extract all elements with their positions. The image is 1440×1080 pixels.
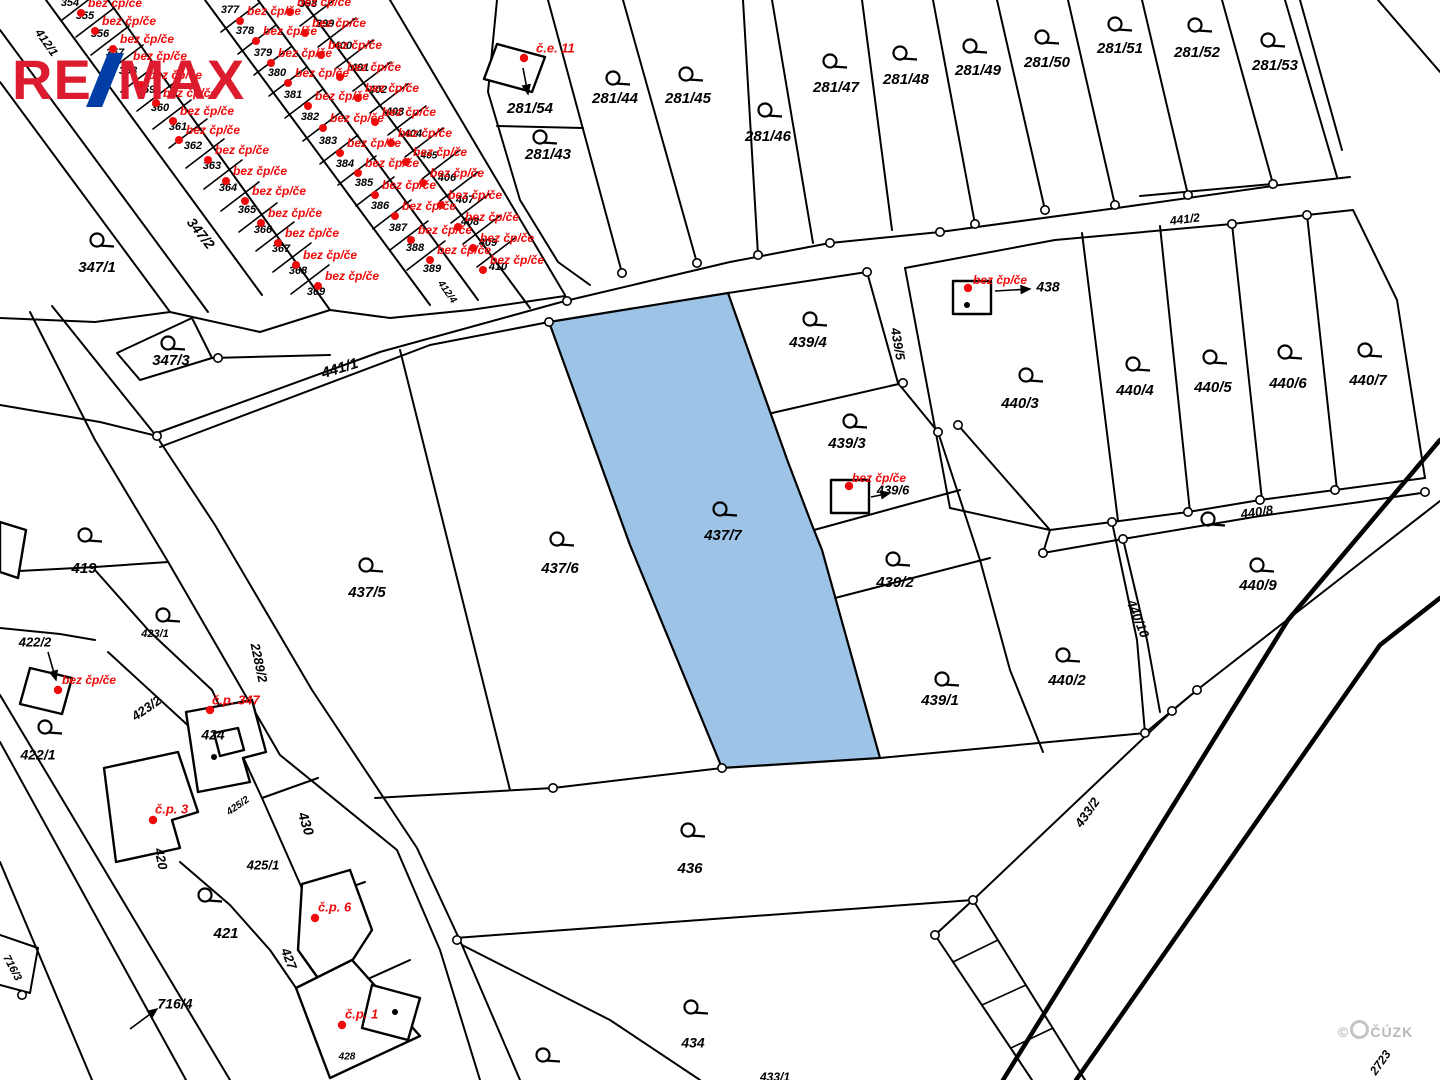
parcel-number-label: 440/9 [1238,577,1277,594]
red-dot [387,139,395,147]
boundary-line [935,900,973,935]
parcel-number-label: 439/2 [875,574,914,591]
watermark-copyright: © [1338,1024,1349,1040]
red-dot [286,8,294,16]
landuse-q-icon [1127,358,1151,371]
boundary-line [973,900,1085,1080]
cadastral-map-canvas: 347/1347/2347/3412/1412/4441/1441/2281/5… [0,0,1440,1080]
red-cadastral-label: č.e. 11 [536,40,575,55]
red-cadastral-label: bez čp/če [325,269,379,283]
parcel-vertex-marker [1228,220,1236,228]
red-dot [317,51,325,59]
parcel-vertex-marker [18,991,26,999]
parcel-number-label: 382 [301,111,319,123]
parcel-vertex-marker [936,228,944,236]
red-dot [845,482,853,490]
parcel-number-label: 388 [406,242,425,254]
red-dot [206,706,214,714]
parcel-number-label: 281/45 [664,90,712,107]
parcel-number-label: 423/2 [128,692,165,724]
red-cadastral-label: bez čp/če [418,223,472,237]
parcel-number-label: 422/2 [18,634,52,649]
landuse-q-icon [607,72,631,85]
parcel-number-label: 439/3 [827,435,866,452]
q-tail [1271,46,1285,47]
red-cadastral-label: bez čp/če [490,253,544,267]
q-tail [1260,571,1274,572]
parcel-number-label: 423/1 [140,628,169,640]
parcel-number-label: 438 [1035,279,1060,295]
red-dot [257,219,265,227]
parcel-number-label: 365 [238,204,257,216]
boundary-line [1232,224,1262,500]
parcel-number-label: 281/47 [812,79,860,96]
landuse-q-icon [1251,559,1275,572]
parcel-number-label: 437/7 [703,527,742,544]
q-tail [1368,356,1382,357]
q-tail [1045,43,1059,44]
landuse-q-icon [537,1049,561,1062]
red-cadastral-label: bez čp/če [430,166,484,180]
red-cadastral-label: bez čp/če [303,248,357,262]
red-dot [336,73,344,81]
parcel-number-label: 377 [221,4,240,16]
parcel-number-label: 433/1 [759,1070,790,1080]
landuse-q-icon [162,337,186,350]
red-cadastral-label: bez čp/če [285,226,339,240]
landuse-q-icon [804,313,828,326]
red-dot [301,29,309,37]
parcel-vertex-marker [1168,707,1176,715]
red-dot [338,1021,346,1029]
q-tail [1118,30,1132,31]
red-dot [204,156,212,164]
red-cadastral-label: bez čp/če [382,178,436,192]
q-tail [1213,363,1227,364]
parcel-vertex-marker [1111,201,1119,209]
landuse-q-icon [844,415,868,428]
red-cadastral-label: bez čp/če [88,0,142,10]
parcel-vertex-marker [563,297,571,305]
parcel-number-label: 440/6 [1268,375,1307,392]
landuse-q-icon [682,824,706,837]
parcel-number-label: 433/2 [1071,794,1103,831]
red-dot [236,17,244,25]
red-dot [175,136,183,144]
boundary-line [1003,440,1440,1080]
landuse-q-icon [360,559,384,572]
parcel-number-label: 379 [254,47,273,59]
red-dot [964,284,972,292]
q-tail [833,67,847,68]
landuse-q-icon [680,68,704,81]
red-dot [371,191,379,199]
q-tail [945,685,959,686]
parcel-number-label: 281/44 [591,90,639,107]
parcel-number-label: 424 [200,727,225,743]
parcel-vertex-marker [1119,535,1127,543]
q-tail [1198,31,1212,32]
parcel-vertex-marker [1039,549,1047,557]
q-tail [543,143,557,144]
landuse-q-icon [1189,19,1213,32]
parcel-vertex-marker [453,936,461,944]
red-cadastral-label: bez čp/če [480,231,534,245]
q-tail [616,84,630,85]
parcel-number-label: 354 [61,0,79,9]
parcel-vertex-marker [754,251,762,259]
parcel-number-label: 2289/2 [247,641,270,685]
red-cadastral-label: bez čp/če [215,143,269,157]
remax-logo: REMAX [12,52,245,108]
q-tail [896,565,910,566]
boundary-line [772,383,903,413]
parcel-number-label: 440/3 [1000,395,1039,412]
parcel-vertex-marker [153,432,161,440]
cadastral-map-screenshot: 347/1347/2347/3412/1412/4441/1441/2281/5… [0,0,1440,1080]
building-point [392,1009,398,1015]
boundary-line [1160,226,1190,512]
red-dot [91,27,99,35]
parcel-vertex-marker [1184,191,1192,199]
parcel-vertex-marker [718,764,726,772]
red-dot [437,201,445,209]
landuse-q-icon [887,553,911,566]
red-cadastral-label: č.p. 6 [318,899,352,914]
red-cadastral-label: bez čp/če [312,16,366,30]
red-dot [407,236,415,244]
red-cadastral-label: bez čp/če [465,210,519,224]
parcel-number-label: 384 [336,158,354,170]
red-dot [319,124,327,132]
boundary-line [772,0,813,243]
boundary-line [1068,0,1115,205]
parcel-vertex-marker [1193,686,1201,694]
red-dot [336,149,344,157]
boundary-line [160,322,549,447]
parcel-vertex-marker [931,931,939,939]
parcel-number-label: 381 [284,89,302,101]
parcel-vertex-marker [1303,211,1311,219]
red-cadastral-label: č.p. 347 [212,692,260,707]
boundary-line [1142,0,1188,195]
landuse-q-icon [1109,18,1133,31]
parcel-number-label: 362 [184,140,202,152]
landuse-q-icon [91,234,115,247]
landuse-q-icon [1202,513,1226,526]
parcel-number-label: 281/50 [1023,54,1071,71]
parcel-number-label: 439/4 [788,334,827,351]
q-tail [1066,661,1080,662]
parcel-vertex-marker [954,421,962,429]
landuse-q-icon [1262,34,1286,47]
boundary-line [1082,233,1118,521]
landuse-q-icon [1020,369,1044,382]
red-cadastral-label: bez čp/če [62,673,116,687]
red-dot [314,282,322,290]
boundary-line [1140,184,1272,196]
parcel-number-label: 716/4 [157,996,192,1012]
landuse-q-icon [936,673,960,686]
parcel-number-label: 440/10 [1123,596,1152,640]
landuse-q-icon [551,533,575,546]
parcel-vertex-marker [549,784,557,792]
red-dot [402,158,410,166]
red-dot [77,9,85,17]
parcel-vertex-marker [934,428,942,436]
red-dot [371,118,379,126]
red-dot [304,102,312,110]
boundary-line [973,690,1197,900]
red-dot [241,197,249,205]
remax-logo-re: RE [12,52,92,108]
watermark-agency: ČÚZK [1370,1024,1413,1040]
parcel-number-label: 716/3 [0,953,24,983]
q-tail [546,1061,560,1062]
red-cadastral-label: bez čp/če [268,206,322,220]
landuse-q-icon [1204,351,1228,364]
red-dot [426,256,434,264]
parcel-vertex-marker [969,896,977,904]
parcel-vertex-marker [1269,180,1277,188]
boundary-line [212,355,330,358]
parcel-vertex-marker [1331,486,1339,494]
parcel-number-label: 425/1 [246,857,280,872]
red-dot [469,244,477,252]
landuse-q-icon [534,131,558,144]
landuse-q-icon [1359,344,1383,357]
parcel-number-label: 440/2 [1047,672,1086,689]
q-tail [973,52,987,53]
red-dot [354,169,362,177]
q-tail [689,80,703,81]
q-tail [369,571,383,572]
remax-logo-max: MAX [118,52,245,108]
landuse-q-icon [824,55,848,68]
q-tail [166,621,180,622]
parcel-number-label: 386 [371,200,390,212]
boundary-line [462,945,700,1080]
red-cadastral-label: bez čp/če [186,123,240,137]
parcel-number-label: 441/2 [1168,210,1201,228]
parcel-number-label: 421 [212,925,238,942]
q-tail [88,541,102,542]
leader-arrow [995,289,1030,291]
parcel-number-label: 412/4 [435,278,459,306]
q-tail [691,836,705,837]
red-dot [391,212,399,220]
parcel-number-label: 380 [268,67,287,79]
q-tail [813,325,827,326]
parcel-number-label: 281/46 [744,128,792,145]
boundary-line [933,0,975,224]
red-cadastral-label: bez čp/če [413,145,467,159]
landuse-q-icon [1057,649,1081,662]
q-tail [100,246,114,247]
red-dot [54,686,62,694]
red-cadastral-label: bez čp/če [328,38,382,52]
building-point [964,302,970,308]
building-point [211,754,217,760]
q-tail [48,733,62,734]
boundary-line [623,0,697,263]
parcel-vertex-marker [545,318,553,326]
cuzk-logo-icon [1350,1020,1369,1039]
q-tail [903,59,917,60]
parcel-number-label: 385 [355,177,374,189]
q-tail [560,545,574,546]
boundary-line [1307,215,1337,490]
boundary-line [1197,501,1440,690]
parcel-number-label: 281/43 [524,146,572,163]
red-dot [292,261,300,269]
parcel-vertex-marker [971,220,979,228]
red-dot [169,117,177,125]
red-dot [479,266,487,274]
red-cadastral-label: bez čp/če [448,188,502,202]
parcel-vertex-marker [214,354,222,362]
parcel-number-label: 281/51 [1096,40,1143,57]
parcel-vertex-marker [618,269,626,277]
parcel-number-label: 2723 [1366,1047,1394,1078]
parcel-number-label: 440/7 [1348,372,1387,389]
parcel-number-label: 387 [389,222,408,234]
boundary-line [982,985,1026,1005]
parcel-number-label: 430 [295,809,318,837]
leader-arrow-layer [48,68,1030,1029]
red-cadastral-label: bez čp/če [233,164,287,178]
parcel-number-label: 281/52 [1173,44,1221,61]
boundary-line [728,272,867,293]
red-dot [354,94,362,102]
boundary-line [862,0,892,230]
boundary-line [905,210,1353,268]
parcel-number-label: 281/49 [954,62,1002,79]
q-tail [694,1013,708,1014]
red-cadastral-label: bez čp/če [263,24,317,38]
red-cadastral-label: č.p. 3 [155,801,189,816]
parcel-number-label: 347/3 [152,352,190,369]
red-dot [252,37,260,45]
landuse-q-icon [894,47,918,60]
red-dot [284,79,292,87]
parcel-number-label: 389 [423,263,442,275]
red-cadastral-label: bez čp/če [120,32,174,46]
landuse-q-icon [1036,31,1060,44]
q-tail [171,349,185,350]
red-dot [149,816,157,824]
parcel-vertex-marker [1184,508,1192,516]
parcel-number-label: 347/2 [184,214,218,252]
parcel-number-label: 440/8 [1239,502,1275,522]
q-tail [723,515,737,516]
parcel-vertex-marker [899,379,907,387]
landuse-q-icon [759,104,783,117]
boundary-line [958,425,1050,530]
q-tail [208,901,222,902]
parcel-vertex-marker [826,239,834,247]
red-cadastral-label: bez čp/če [398,126,452,140]
parcel-vertex-marker [1108,518,1116,526]
parcel-vertex-marker [863,268,871,276]
boundary-line [880,733,1145,758]
parcel-number-label: 428 [338,1052,356,1063]
q-tail [1211,525,1225,526]
parcel-vertex-marker [1421,488,1429,496]
parcel-number-label: 440/5 [1193,379,1232,396]
boundary-line [262,778,318,798]
red-dot [222,177,230,185]
parcel-number-label: 281/53 [1251,57,1299,74]
landuse-q-icon [964,40,988,53]
parcel-vertex-marker [693,259,701,267]
red-dot [274,239,282,247]
parcel-number-label: 437/5 [347,584,386,601]
parcel-number-label: 378 [236,25,255,37]
red-cadastral-label: bez čp/če [437,243,491,257]
parcel-number-label: 422/1 [19,747,55,763]
red-cadastral-label: č.p. 1 [345,1006,378,1021]
red-dot [267,59,275,67]
boundary-line [905,268,950,508]
q-tail [1029,381,1043,382]
landuse-q-icon [79,529,103,542]
red-dot [454,223,462,231]
boundary-line [1222,0,1273,184]
parcel-number-label: 383 [319,135,337,147]
red-cadastral-label: bez čp/če [347,60,401,74]
red-cadastral-label: bez čp/če [252,184,306,198]
q-tail [1288,358,1302,359]
parcel-number-label: 419 [70,560,97,577]
red-cadastral-label: bez čp/če [973,273,1027,287]
boundary-line [0,82,170,312]
parcel-number-label: 281/54 [506,100,554,117]
landuse-q-icon [685,1001,709,1014]
red-cadastral-label: bez čp/če [365,81,419,95]
parcel-number-label: 425/2 [224,794,252,818]
boundary-line [455,900,973,938]
landuse-q-icon [157,609,181,622]
parcel-number-label: 434 [680,1035,705,1051]
landuse-q-icon [1279,346,1303,359]
parcel-vertex-marker [1041,206,1049,214]
boundary-line [497,126,583,128]
boundary-line [0,296,565,332]
parcel-number-label: 281/48 [882,71,930,88]
red-cadastral-label: bez čp/če [102,14,156,28]
q-tail [853,427,867,428]
parcel-number-label: 439/1 [920,692,959,709]
parcel-number-label: 436 [676,860,703,877]
red-dot [520,54,528,62]
boundary-line [400,350,510,790]
parcel-number-label: 437/6 [540,560,579,577]
red-cadastral-label: bez čp/če [382,105,436,119]
boundary-line [1378,0,1440,72]
red-dot [419,179,427,187]
building-outline [0,522,26,578]
parcel-number-label: 440/4 [1115,382,1154,399]
red-cadastral-label: bez čp/če [297,0,351,9]
parcel-vertex-marker [1141,729,1149,737]
red-dot [311,914,319,922]
landuse-q-icon [39,721,63,734]
red-cadastral-label: bez čp/če [852,471,906,485]
cuzk-watermark: ©ČÚZK [1338,1020,1413,1040]
q-tail [768,116,782,117]
red-cadastral-label: bez čp/če [365,156,419,170]
